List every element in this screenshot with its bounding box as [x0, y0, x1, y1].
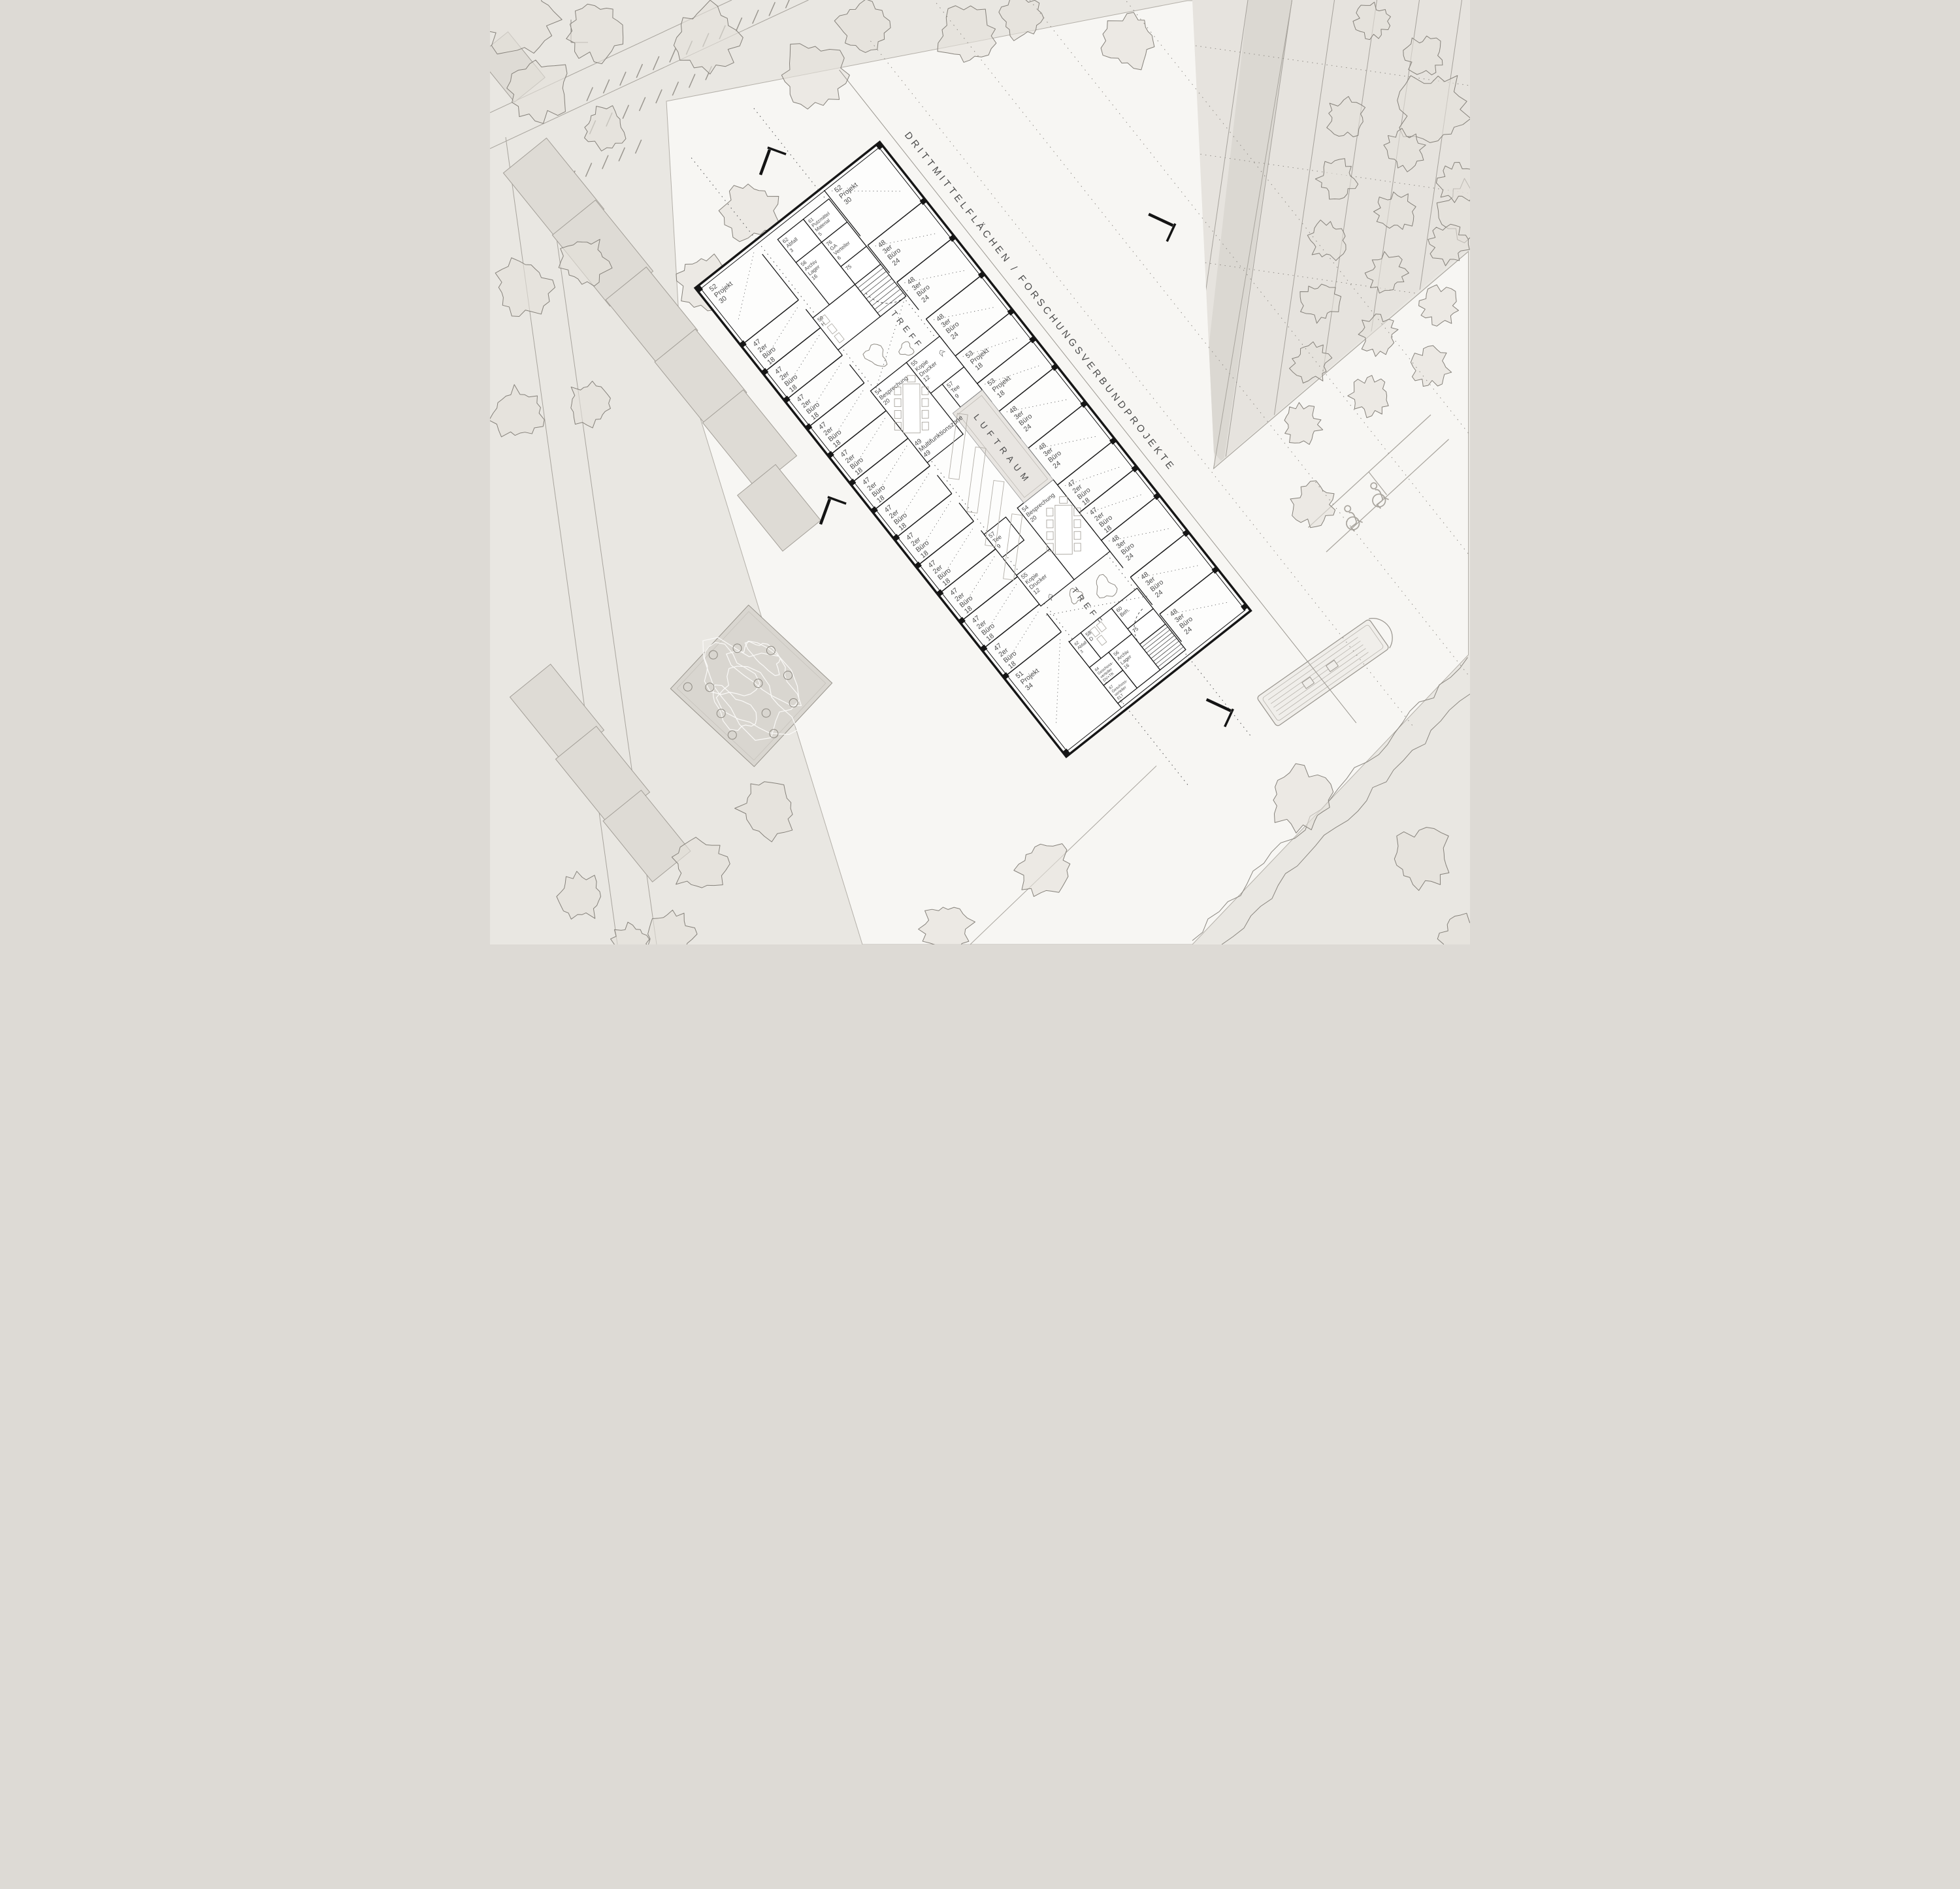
tree-icon	[781, 44, 849, 109]
site-plan-sheet: 52Projekt30483erBüro24483erBüro24483erBü…	[490, 0, 1470, 944]
site-plan-drawing: 52Projekt30483erBüro24483erBüro24483erBü…	[490, 0, 1470, 944]
